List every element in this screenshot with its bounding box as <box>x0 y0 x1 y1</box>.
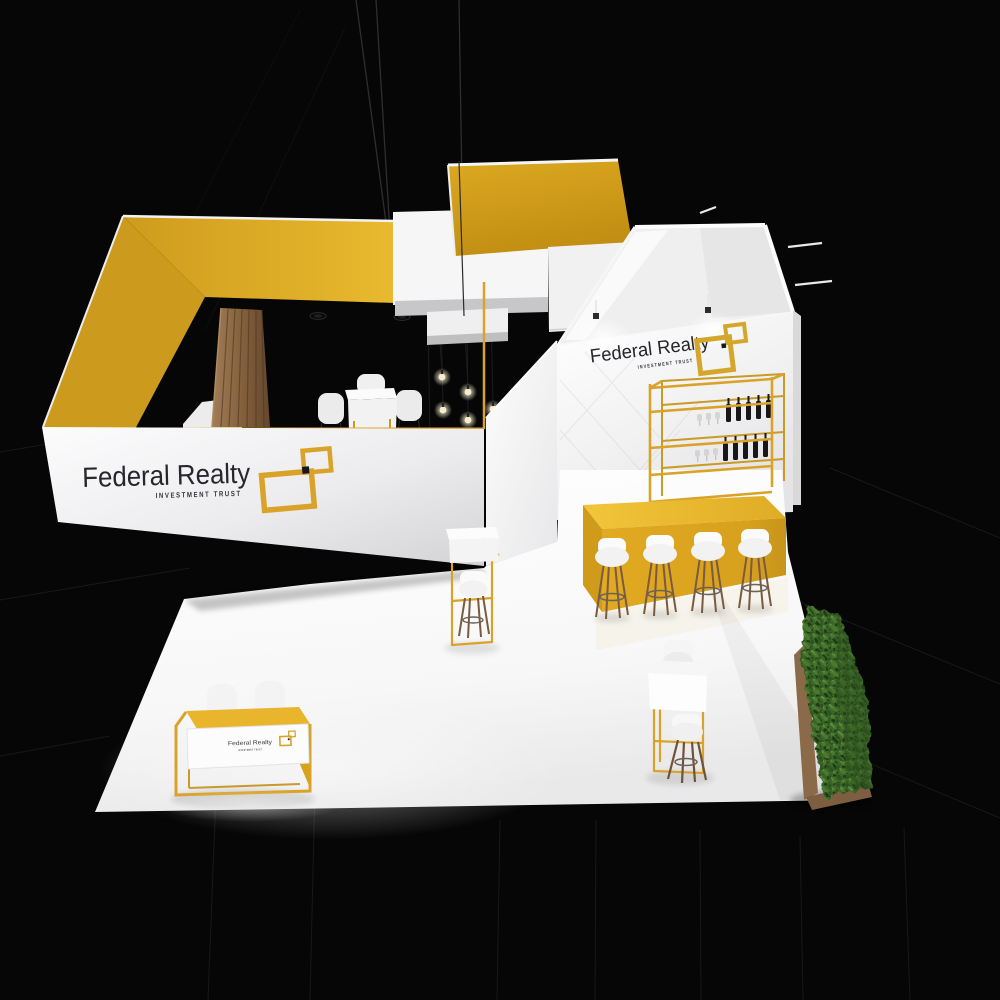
main-sign-title: Federal Realty <box>82 458 251 493</box>
floor-reflection <box>160 790 340 822</box>
booth-render-stage: Federal Realty INVESTMENT TRUST Federal … <box>0 0 1000 1000</box>
room-right-wall <box>793 310 801 505</box>
wood-slat-column <box>212 308 270 427</box>
table-top <box>345 388 397 400</box>
exhibition-booth-render: Federal Realty INVESTMENT TRUST Federal … <box>0 0 1000 1000</box>
chair-right <box>396 390 422 421</box>
chair-left <box>318 393 344 424</box>
canopy-center-inner <box>448 160 632 256</box>
